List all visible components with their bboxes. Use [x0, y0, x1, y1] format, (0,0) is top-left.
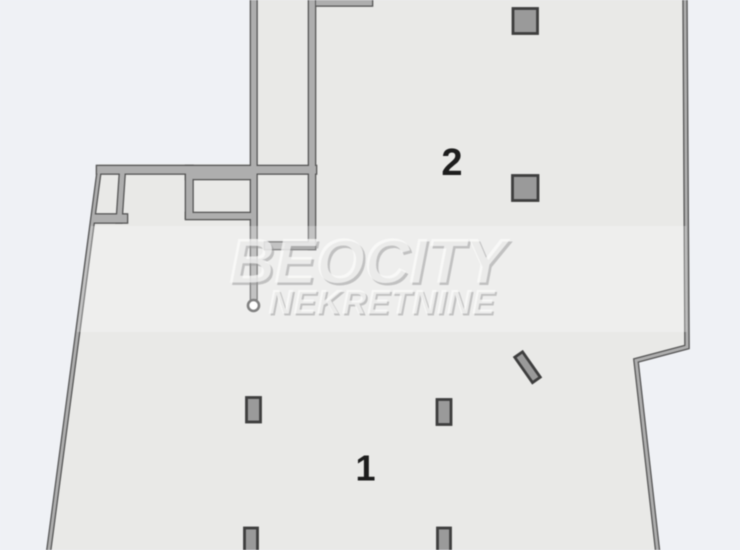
svg-text:NEKRETNINE: NEKRETNINE	[268, 284, 496, 322]
svg-text:1: 1	[355, 448, 375, 489]
svg-text:2: 2	[441, 142, 462, 184]
